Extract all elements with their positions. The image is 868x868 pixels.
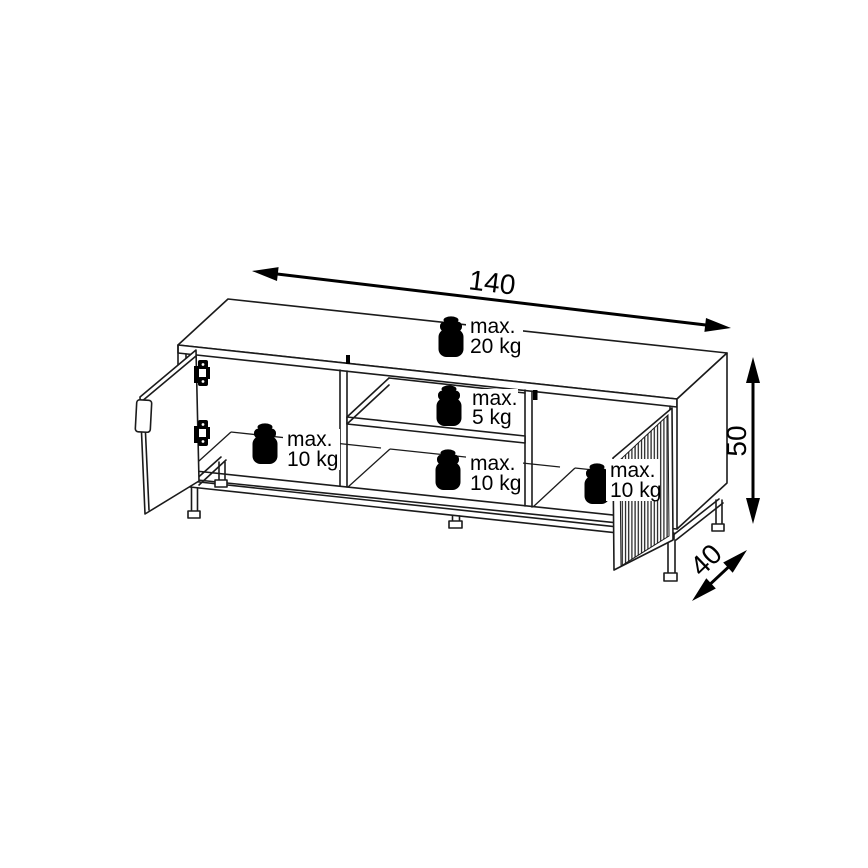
left-door-open — [135, 350, 210, 514]
load-label-left-line2: 10 kg — [287, 448, 338, 471]
leg-foot — [215, 480, 227, 487]
weight-icon — [436, 449, 461, 490]
load-top-panel: max. 20 kg — [439, 315, 524, 358]
weight-icon — [439, 316, 464, 357]
height-dimension-value: 50 — [721, 425, 752, 456]
hinge-plate-icon — [346, 355, 350, 364]
leg-foot — [664, 573, 677, 581]
load-right-compartment-label: max. 10 kg — [606, 459, 661, 502]
arrowhead-icon — [746, 498, 760, 524]
hinge-plate-icon — [533, 390, 538, 400]
load-label-middle-bottom-line2: 10 kg — [470, 472, 521, 495]
leg-foot — [449, 521, 462, 528]
leg-foot — [712, 524, 724, 531]
arrowhead-icon — [704, 318, 731, 332]
weight-icon — [585, 463, 610, 504]
load-middle-bottom: max. 10 kg — [436, 449, 524, 495]
diagram-canvas: max. 20 kg max. 5 kg max. 10 kg max. 10 … — [0, 0, 868, 868]
dimension-depth: 40 — [684, 538, 747, 601]
load-middle-shelf: max. 5 kg — [437, 385, 519, 429]
weight-icon — [437, 385, 462, 426]
load-label-shelf-line2: 5 kg — [472, 406, 512, 429]
width-dimension-value: 140 — [467, 264, 517, 300]
load-label-top-line2: 20 kg — [470, 335, 521, 358]
weight-icon — [253, 423, 278, 464]
arrowhead-icon — [252, 267, 279, 281]
load-right-compartment — [585, 463, 610, 504]
arrowhead-icon — [746, 357, 760, 383]
leg-foot — [188, 511, 200, 518]
load-label-right-line2: 10 kg — [610, 479, 661, 502]
furniture-technical-drawing: max. 20 kg max. 5 kg max. 10 kg max. 10 … — [0, 0, 868, 868]
door-handle — [135, 400, 152, 433]
load-left-compartment: max. 10 kg — [253, 423, 341, 471]
